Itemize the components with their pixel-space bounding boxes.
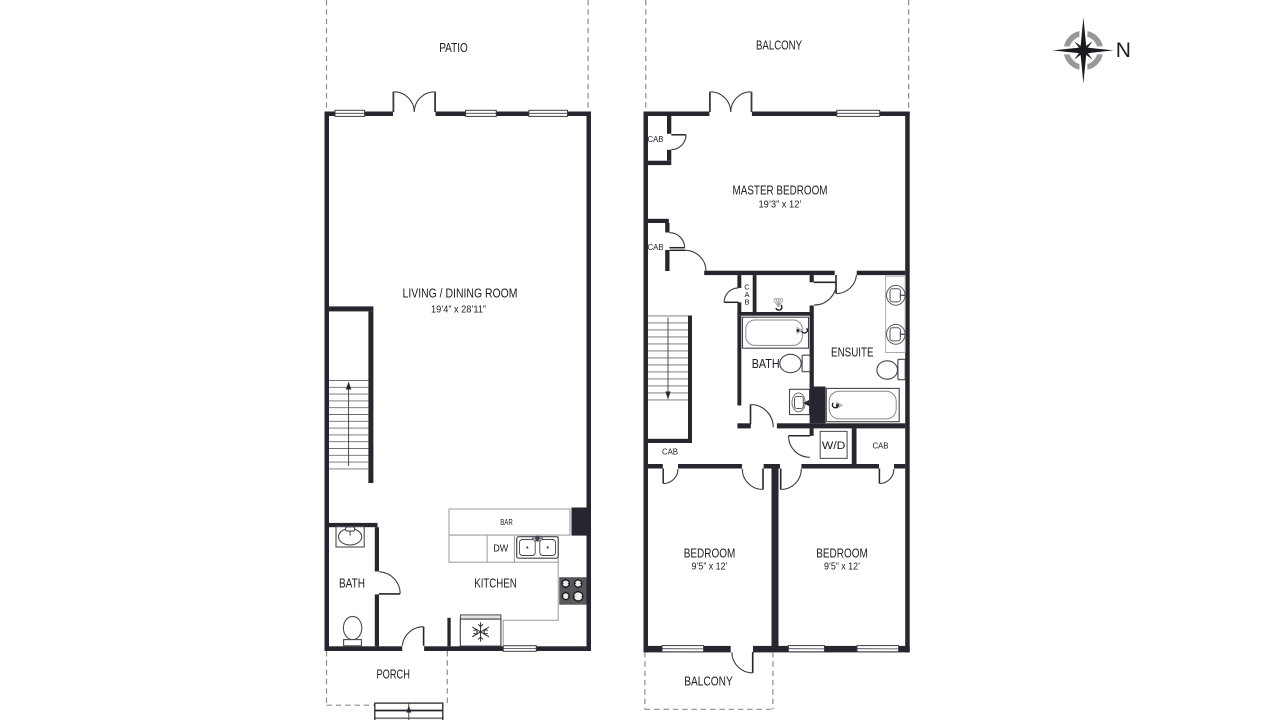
svg-text:W/D: W/D xyxy=(822,440,846,452)
svg-text:PORCH: PORCH xyxy=(376,667,410,681)
svg-text:CAB: CAB xyxy=(662,447,678,456)
svg-text:BATH: BATH xyxy=(339,576,365,590)
svg-text:19’4” x 28’11”: 19’4” x 28’11” xyxy=(431,303,486,315)
svg-text:BEDROOM: BEDROOM xyxy=(684,546,736,560)
svg-text:KITCHEN: KITCHEN xyxy=(474,577,517,591)
svg-text:CAB: CAB xyxy=(873,442,889,451)
svg-text:CAB: CAB xyxy=(648,135,664,144)
svg-text:B: B xyxy=(744,297,749,306)
svg-text:BATH: BATH xyxy=(752,357,780,371)
svg-text:CAB: CAB xyxy=(648,243,664,252)
svg-text:N: N xyxy=(1116,39,1131,62)
svg-text:ENSUITE: ENSUITE xyxy=(831,346,874,360)
svg-text:DW: DW xyxy=(493,544,508,555)
svg-text:19’3” x 12’: 19’3” x 12’ xyxy=(759,199,802,211)
svg-text:BALCONY: BALCONY xyxy=(756,38,803,52)
svg-text:BAR: BAR xyxy=(500,517,513,527)
svg-text:9’5” x 12’: 9’5” x 12’ xyxy=(824,561,860,573)
svg-text:LIVING / DINING ROOM: LIVING / DINING ROOM xyxy=(403,286,518,300)
svg-text:PATIO: PATIO xyxy=(439,41,468,55)
svg-text:MASTER BEDROOM: MASTER BEDROOM xyxy=(733,183,828,197)
svg-text:BEDROOM: BEDROOM xyxy=(816,546,868,560)
svg-text:BALCONY: BALCONY xyxy=(684,674,733,688)
svg-text:9’5” x 12’: 9’5” x 12’ xyxy=(692,561,728,573)
